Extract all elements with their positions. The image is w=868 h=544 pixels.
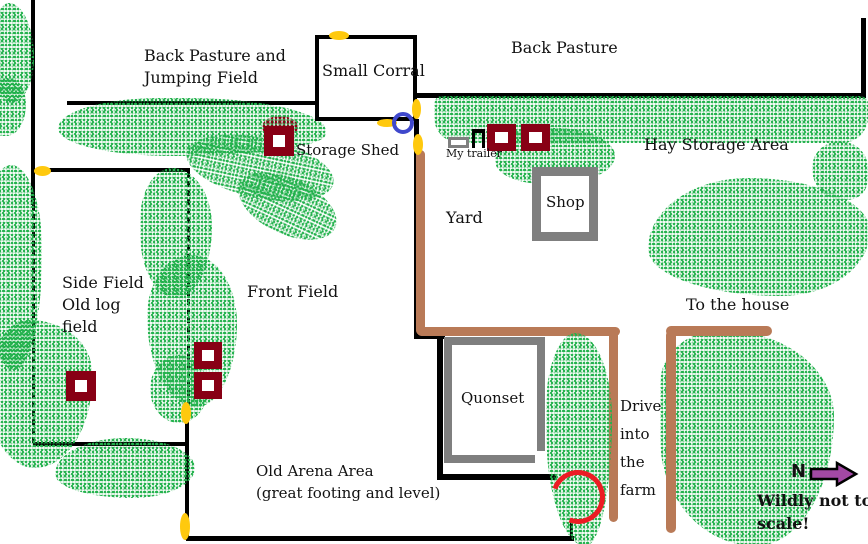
fence-bottom [186,536,574,541]
farm-map: Back Pasture and Jumping Field Small Cor… [0,0,868,544]
label-hay-storage: Hay Storage Area [644,136,789,154]
fence-left-vertical [31,0,35,205]
label-shop: Shop [546,194,585,211]
gate-mid-fence-lower [180,513,190,540]
gate-corral-right [412,99,421,119]
quonset-door-notch [535,451,547,467]
gate-mid-fence-upper [181,402,191,424]
label-back-pasture-jumping-1: Back Pasture and [144,47,286,65]
label-yard: Yard [446,209,483,227]
water-gate-circle-blue [392,112,414,134]
label-quonset: Quonset [461,390,524,407]
label-side-field-2: Old log [62,296,121,314]
jump-near-trailer-2 [521,124,550,151]
fence-right-return [861,18,866,97]
storage-shed-building [264,126,294,156]
drive-yard-horizontal [417,327,620,336]
label-not-to-scale-1: Wildly not to [757,492,868,510]
hitch-post [472,129,485,148]
label-storage-shed: Storage Shed [296,142,399,159]
gate-side-field-top [34,166,51,176]
label-small-corral: Small Corral [322,62,425,80]
gate-corral-top [329,31,349,40]
label-drive-4: farm [620,482,656,499]
label-old-arena-1: Old Arena Area [256,463,374,480]
fence-quonset-bottom [437,474,556,480]
label-front-field: Front Field [247,283,338,301]
label-drive-2: into [620,426,650,443]
gate-yard-fence [413,134,423,155]
label-drive-3: the [620,454,645,471]
label-back-pasture-jumping-2: Jumping Field [144,69,258,87]
trees-below-side-field [55,438,195,498]
trees-bottom-right-blob [660,330,834,544]
north-arrow-icon [809,460,859,488]
label-north: N [791,462,806,482]
label-not-to-scale-2: scale! [757,515,809,533]
label-drive-1: Drive [620,398,661,415]
label-side-field-3: field [62,318,98,336]
drive-yard-vertical [416,150,425,335]
fence-quonset-left [437,337,443,480]
label-my-trailer: My trailer [446,148,502,160]
jump-front-field-2 [194,372,222,399]
jump-side-field [66,371,96,401]
trees-right-of-shop [648,178,868,296]
trees-left-upper [0,78,26,136]
drive-house-vertical [666,330,676,533]
label-to-the-house: To the house [686,296,789,314]
drive-house-horizontal [666,326,772,336]
label-back-pasture: Back Pasture [511,39,618,57]
label-old-arena-2: (great footing and level) [256,485,440,502]
label-side-field-1: Side Field [62,274,144,292]
jump-front-field-1 [194,342,222,369]
